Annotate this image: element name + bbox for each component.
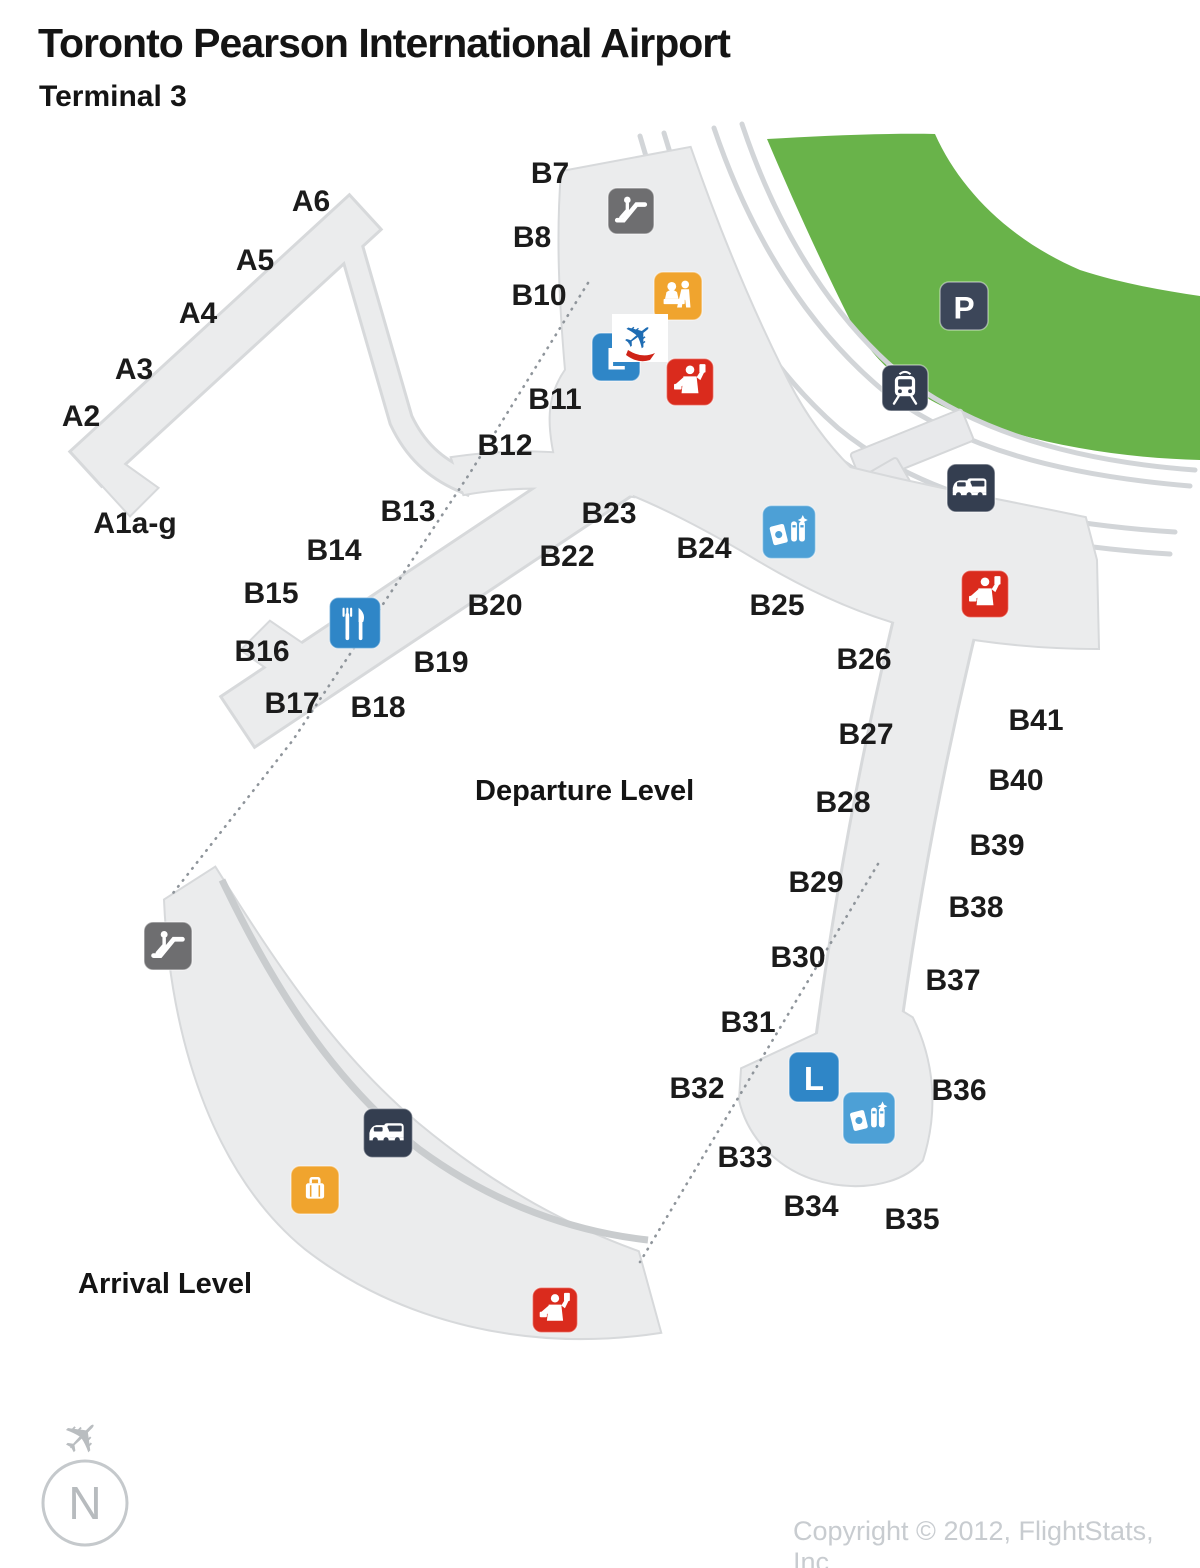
gate-label-B8: B8	[513, 221, 551, 254]
gate-label-B13: B13	[380, 495, 435, 528]
gate-label-A4: A4	[179, 297, 218, 330]
gate-label-B27: B27	[838, 718, 893, 751]
ground-transport-icon	[947, 464, 995, 512]
escalator-icon	[144, 922, 192, 970]
gate-label-B31: B31	[720, 1006, 775, 1039]
gate-label-B32: B32	[669, 1072, 724, 1105]
gate-label-B7: B7	[531, 157, 569, 190]
gate-label-B35: B35	[884, 1203, 939, 1236]
train-station-icon	[882, 365, 928, 411]
gate-label-B11: B11	[528, 383, 581, 416]
currency-exchange-icon	[843, 1092, 895, 1144]
compass: N ✈	[43, 1405, 127, 1545]
gate-label-B16: B16	[234, 635, 289, 668]
gate-label-A1a-g: A1a-g	[93, 507, 176, 540]
check-in-desk-icon	[654, 272, 702, 320]
gate-label-B41: B41	[1008, 704, 1063, 737]
gate-label-B25: B25	[749, 589, 804, 622]
parking-icon: P	[940, 282, 988, 330]
departure-level-label: Departure Level	[475, 775, 694, 807]
arrival-level-label: Arrival Level	[78, 1268, 252, 1300]
svg-text:P: P	[953, 289, 974, 325]
gate-label-A2: A2	[62, 400, 100, 433]
gate-label-B39: B39	[969, 829, 1024, 862]
gate-label-B36: B36	[931, 1074, 986, 1107]
ground-transport-icon	[364, 1109, 413, 1158]
copyright-notice: Copyright © 2012, FlightStats, Inc.	[793, 1516, 1200, 1568]
terminal-map: A6A5A4A3A2A1a-gB7B8B10B11B12B13B14B15B16…	[0, 0, 1200, 1568]
gate-label-B23: B23	[581, 497, 636, 530]
baggage-claim-icon	[291, 1166, 339, 1214]
gate-label-B15: B15	[243, 577, 298, 610]
airport-map-page: A6A5A4A3A2A1a-gB7B8B10B11B12B13B14B15B16…	[0, 0, 1200, 1568]
gate-label-B37: B37	[925, 964, 980, 997]
airline-logo-icon: ✈	[612, 311, 668, 362]
gate-label-B18: B18	[350, 691, 405, 724]
elevator-icon: L	[789, 1052, 839, 1102]
gate-label-B29: B29	[788, 866, 843, 899]
gate-label-B20: B20	[467, 589, 522, 622]
gate-label-B30: B30	[770, 941, 825, 974]
gate-label-B28: B28	[815, 786, 870, 819]
gate-label-B19: B19	[413, 646, 468, 679]
passport-control-icon	[962, 571, 1009, 618]
gate-label-B24: B24	[676, 532, 731, 565]
restaurant-icon	[330, 598, 381, 649]
gate-label-B40: B40	[988, 764, 1043, 797]
gate-label-A3: A3	[115, 353, 153, 386]
passport-control-icon	[533, 1288, 578, 1333]
gate-label-A6: A6	[292, 185, 330, 218]
escalator-icon	[608, 188, 654, 234]
gate-label-B34: B34	[783, 1190, 838, 1223]
gate-label-B26: B26	[836, 643, 891, 676]
gate-label-B38: B38	[948, 891, 1003, 924]
gate-label-B17: B17	[264, 687, 319, 720]
gate-label-B22: B22	[539, 540, 594, 573]
passport-control-icon	[667, 359, 714, 406]
gate-label-B33: B33	[717, 1141, 772, 1174]
currency-exchange-icon	[763, 506, 816, 559]
page-subtitle: Terminal 3	[39, 80, 187, 114]
gate-label-B10: B10	[511, 279, 566, 312]
gate-label-B12: B12	[477, 429, 532, 462]
svg-text:L: L	[804, 1060, 824, 1097]
compass-north-label: N	[68, 1477, 101, 1529]
gate-label-A5: A5	[236, 244, 274, 277]
gate-label-B14: B14	[306, 534, 361, 567]
compass-plane-icon: ✈	[50, 1405, 114, 1469]
page-title: Toronto Pearson International Airport	[38, 20, 730, 67]
